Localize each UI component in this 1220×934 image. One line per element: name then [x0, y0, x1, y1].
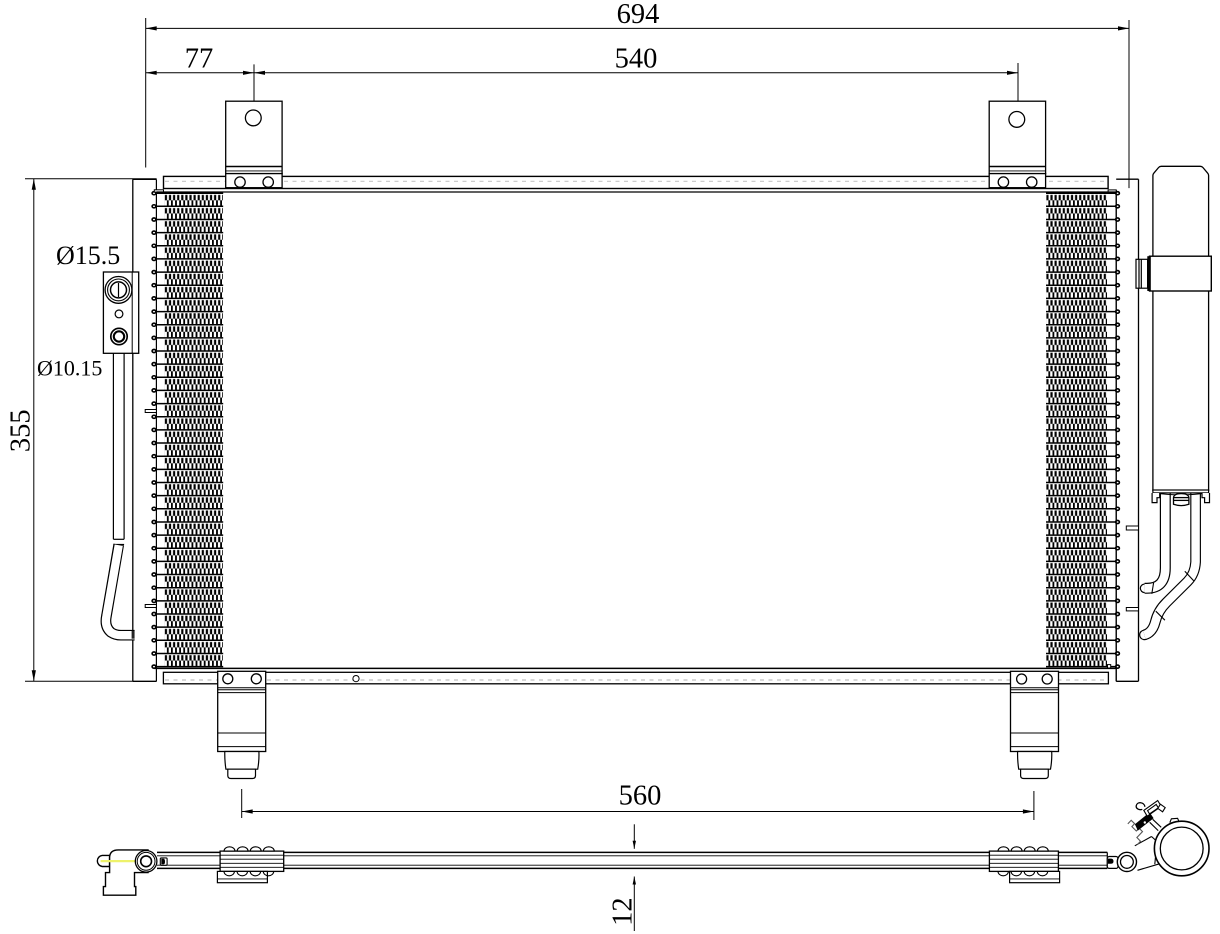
- svg-text:77: 77: [185, 44, 214, 75]
- svg-text:540: 540: [615, 44, 658, 75]
- svg-text:Ø10.15: Ø10.15: [37, 356, 102, 381]
- svg-text:694: 694: [617, 0, 660, 30]
- svg-text:12: 12: [608, 897, 639, 926]
- svg-text:Ø15.5: Ø15.5: [56, 241, 120, 270]
- svg-text:355: 355: [6, 409, 37, 452]
- svg-text:560: 560: [619, 781, 662, 812]
